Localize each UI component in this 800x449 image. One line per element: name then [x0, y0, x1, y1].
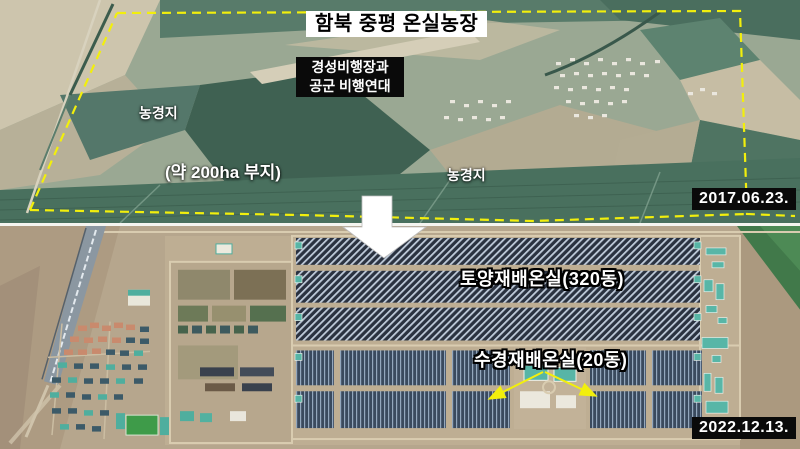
- annotated-satellite-comparison: 함북 중평 온실농장 경성비행장과 공군 비행연대 농경지 (약 200ha 부…: [0, 0, 800, 449]
- airfield-label-line2: 공군 비행연대: [296, 77, 404, 96]
- soil-greenhouse-label: 토양재배온실(320동): [460, 265, 624, 291]
- panel-divider: [0, 223, 800, 226]
- farmland-label-right: 농경지: [447, 165, 486, 185]
- farm-title: 함북 중평 온실농장: [306, 11, 487, 37]
- panel-2022: [0, 226, 800, 449]
- satellite-scene-2022: [0, 226, 800, 449]
- farm-title-text: 함북 중평 온실농장: [315, 13, 478, 35]
- airfield-label: 경성비행장과 공군 비행연대: [296, 57, 404, 97]
- airfield-label-line1: 경성비행장과: [296, 58, 404, 77]
- farmland-label-left: 농경지: [139, 103, 178, 123]
- site-area-label: (약 200ha 부지): [165, 158, 281, 183]
- hydroponic-greenhouse-label: 수경재배온실(20동): [474, 346, 627, 372]
- capture-date-2017: 2017.06.23.: [692, 188, 796, 210]
- capture-date-2022: 2022.12.13.: [692, 417, 796, 439]
